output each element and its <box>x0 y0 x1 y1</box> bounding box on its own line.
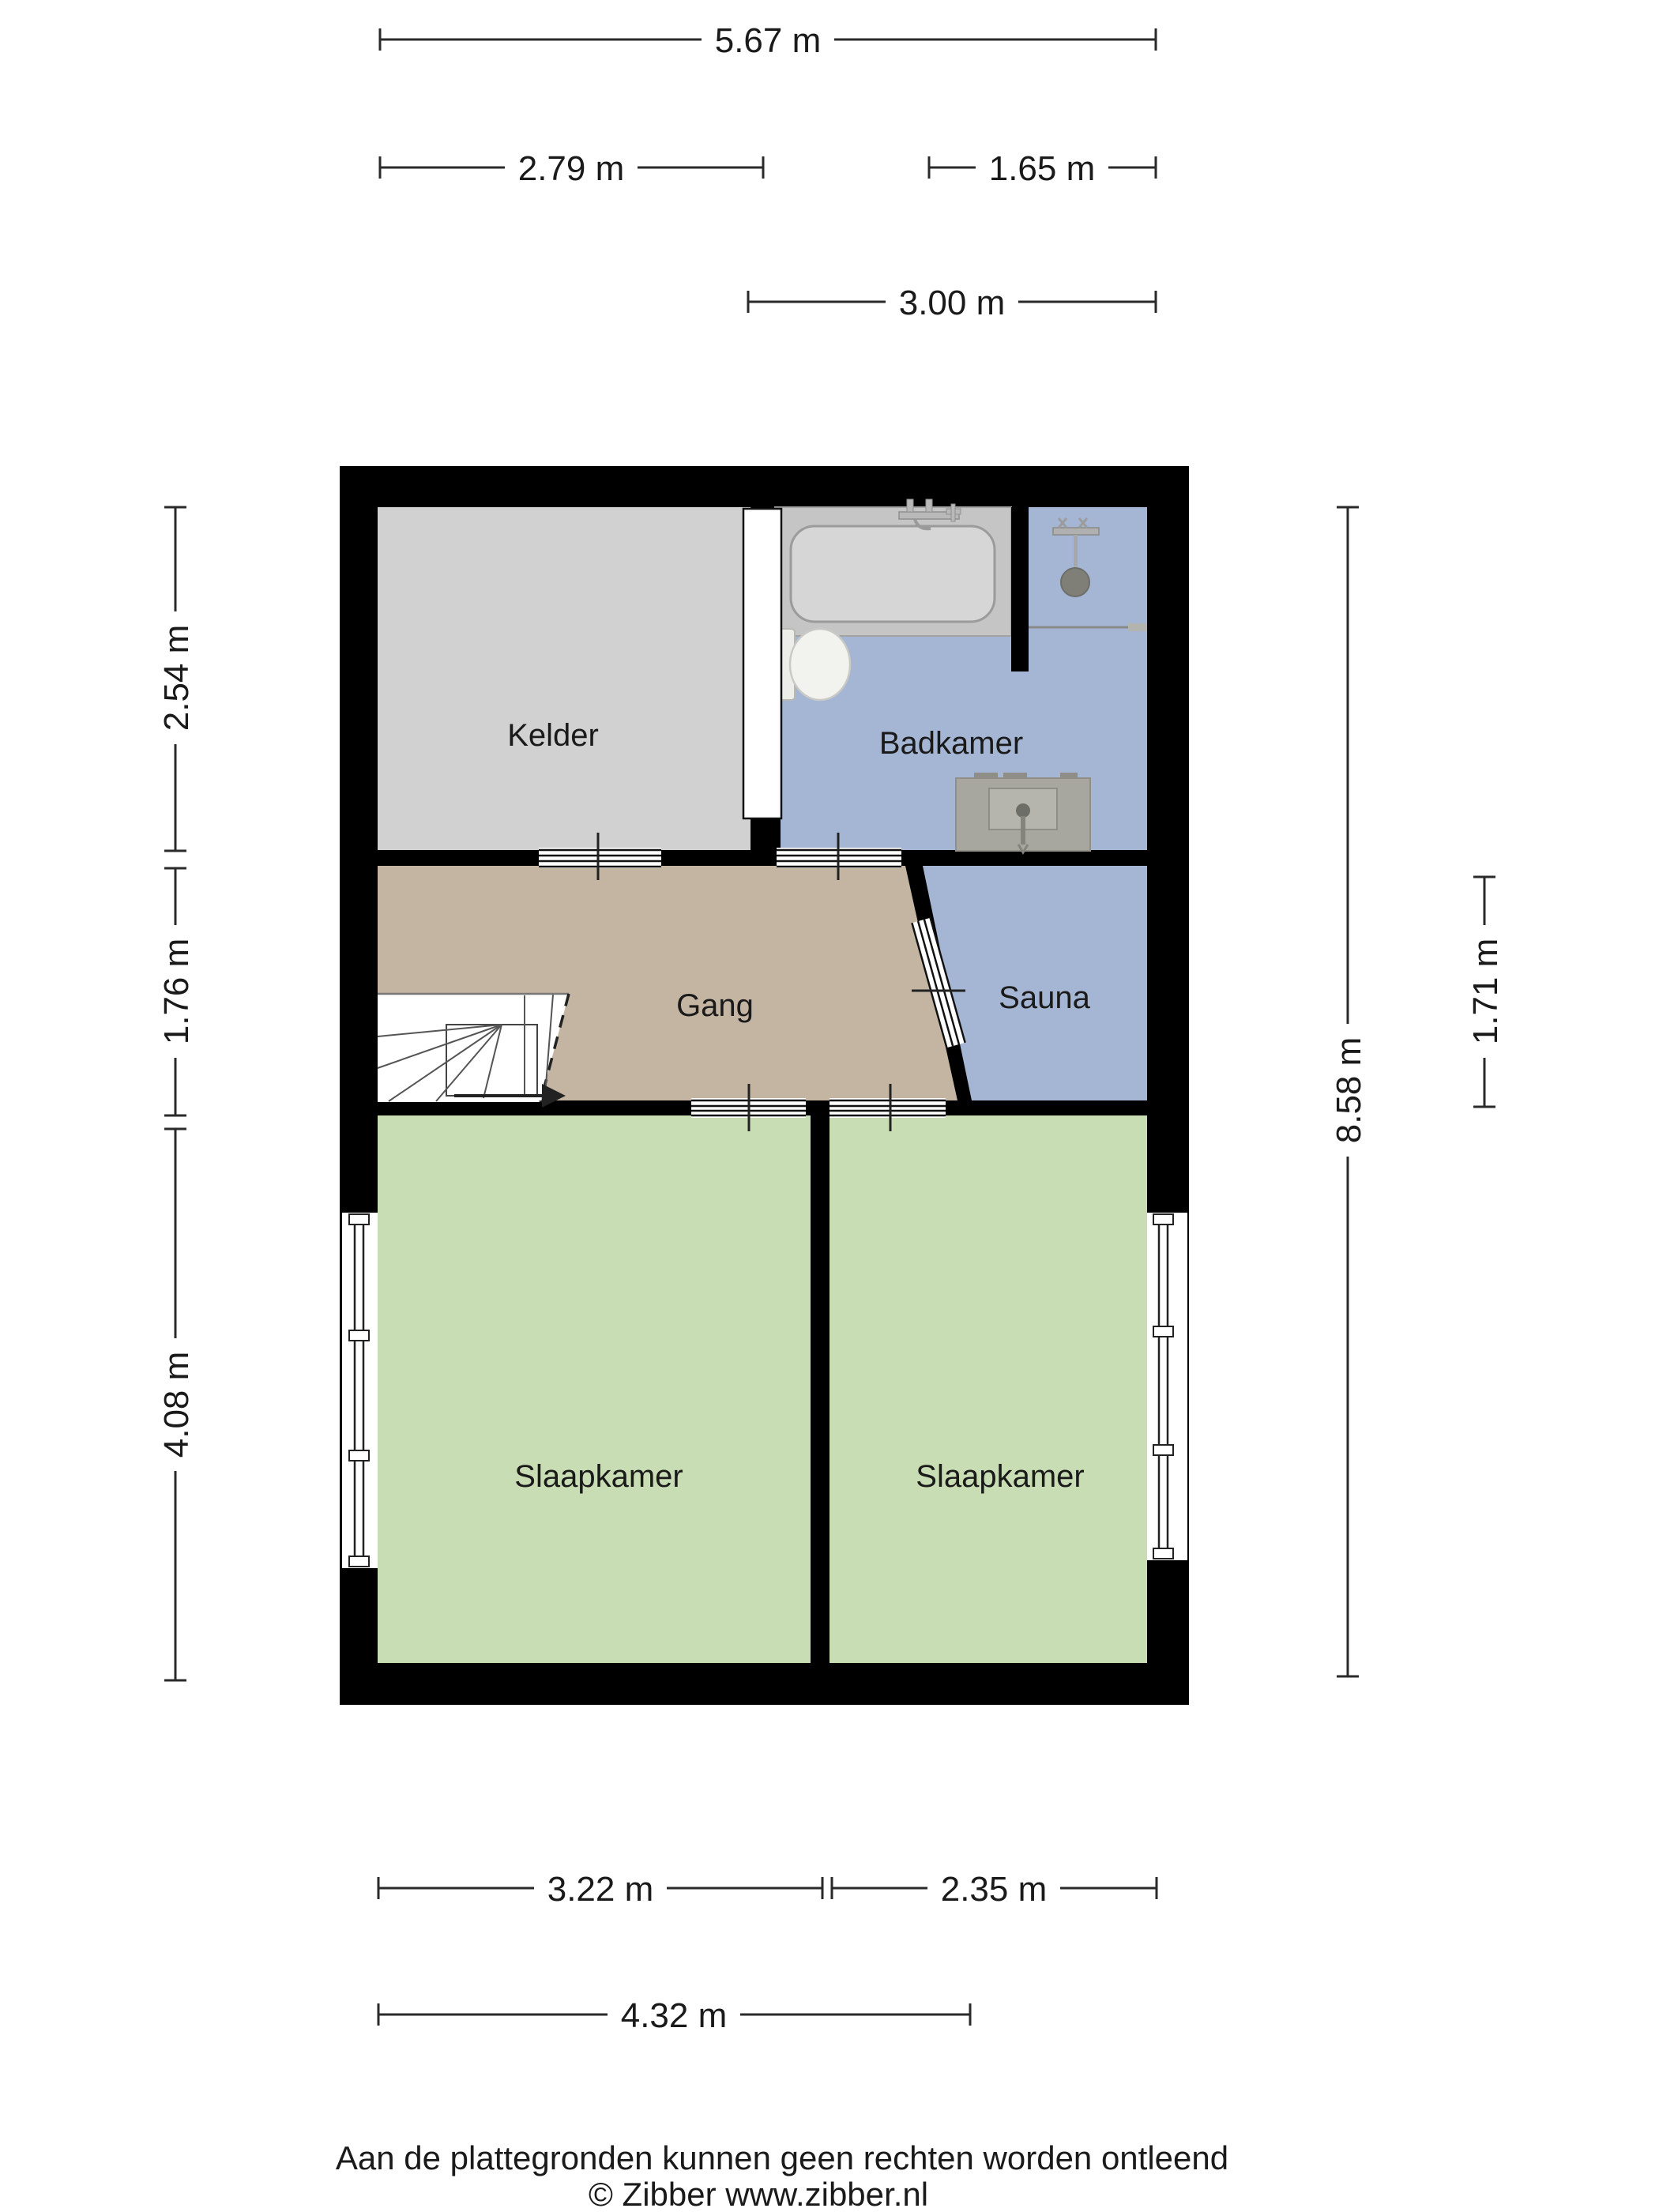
dim-left-kelder-label: 2.54 m <box>157 625 196 732</box>
dim-bottom-total: 4.32 m <box>378 1992 970 2037</box>
window-left <box>342 1213 378 1568</box>
floorplan-canvas: Kelder Badkamer Gang Sauna Slaapkamer Sl… <box>0 0 1659 2212</box>
slaapkamer-links-floor <box>378 1115 811 1663</box>
room-slaapkamer-links <box>378 1115 811 1663</box>
bath-shower-wall <box>1011 507 1029 671</box>
shower-glass-cap <box>1128 623 1147 631</box>
kelder-floor <box>378 507 750 850</box>
room-kelder <box>378 507 750 850</box>
gang-label: Gang <box>676 988 754 1023</box>
dim-top-left-label: 2.79 m <box>518 149 625 188</box>
dim-top-total: 5.67 m <box>380 17 1156 62</box>
kelder-label: Kelder <box>507 718 599 753</box>
slaapkamer-rechts-floor <box>829 1115 1147 1663</box>
kelder-badkamer-door <box>743 509 781 818</box>
room-slaapkamer-rechts <box>829 1115 1147 1663</box>
bath-icon <box>775 499 1011 636</box>
dim-left-kelder: 2.54 m <box>153 507 197 851</box>
slaapkamer-links-label: Slaapkamer <box>514 1459 683 1494</box>
dim-top-badkamer: 3.00 m <box>748 280 1156 324</box>
dim-right-sauna: 1.71 m <box>1462 877 1507 1107</box>
dim-bottom-right: 2.35 m <box>832 1866 1157 1910</box>
dim-top-total-label: 5.67 m <box>715 21 822 60</box>
stairs-icon <box>378 994 569 1108</box>
badkamer-label: Badkamer <box>879 726 1023 761</box>
floorplan-page: Kelder Badkamer Gang Sauna Slaapkamer Sl… <box>0 0 1659 2212</box>
dim-left-gang-label: 1.76 m <box>157 939 196 1045</box>
dim-bottom-left-label: 3.22 m <box>547 1870 654 1909</box>
dim-right-total-label: 8.58 m <box>1330 1037 1368 1144</box>
shower-head-icon <box>1061 568 1089 596</box>
dim-bottom-total-label: 4.32 m <box>621 1996 728 2035</box>
dim-left-slaapkamer-label: 4.08 m <box>157 1352 196 1458</box>
window-right <box>1147 1213 1187 1560</box>
dim-right-sauna-label: 1.71 m <box>1466 939 1505 1045</box>
floorplan: Kelder Badkamer Gang Sauna Slaapkamer Sl… <box>340 466 1189 1705</box>
sauna-label: Sauna <box>999 980 1090 1015</box>
dim-top-right: 1.65 m <box>929 145 1156 190</box>
dim-top-right-label: 1.65 m <box>989 149 1096 188</box>
dim-left-gang: 1.76 m <box>153 868 197 1115</box>
sink-icon <box>956 773 1090 852</box>
footer: Aan de plattegronden kunnen geen rechten… <box>336 2139 1228 2212</box>
footer-disclaimer: Aan de plattegronden kunnen geen rechten… <box>336 2139 1228 2176</box>
toilet-icon <box>776 629 850 700</box>
dim-right-total: 8.58 m <box>1326 507 1370 1676</box>
dim-bottom-right-label: 2.35 m <box>941 1870 1048 1909</box>
slaapkamer-rechts-label: Slaapkamer <box>916 1459 1084 1494</box>
dim-bottom-left: 3.22 m <box>378 1866 822 1910</box>
dim-left-slaapkamer: 4.08 m <box>153 1129 197 1680</box>
dim-top-badkamer-label: 3.00 m <box>899 284 1006 322</box>
dim-top-left: 2.79 m <box>380 145 763 190</box>
footer-copyright: © Zibber www.zibber.nl <box>589 2176 928 2212</box>
